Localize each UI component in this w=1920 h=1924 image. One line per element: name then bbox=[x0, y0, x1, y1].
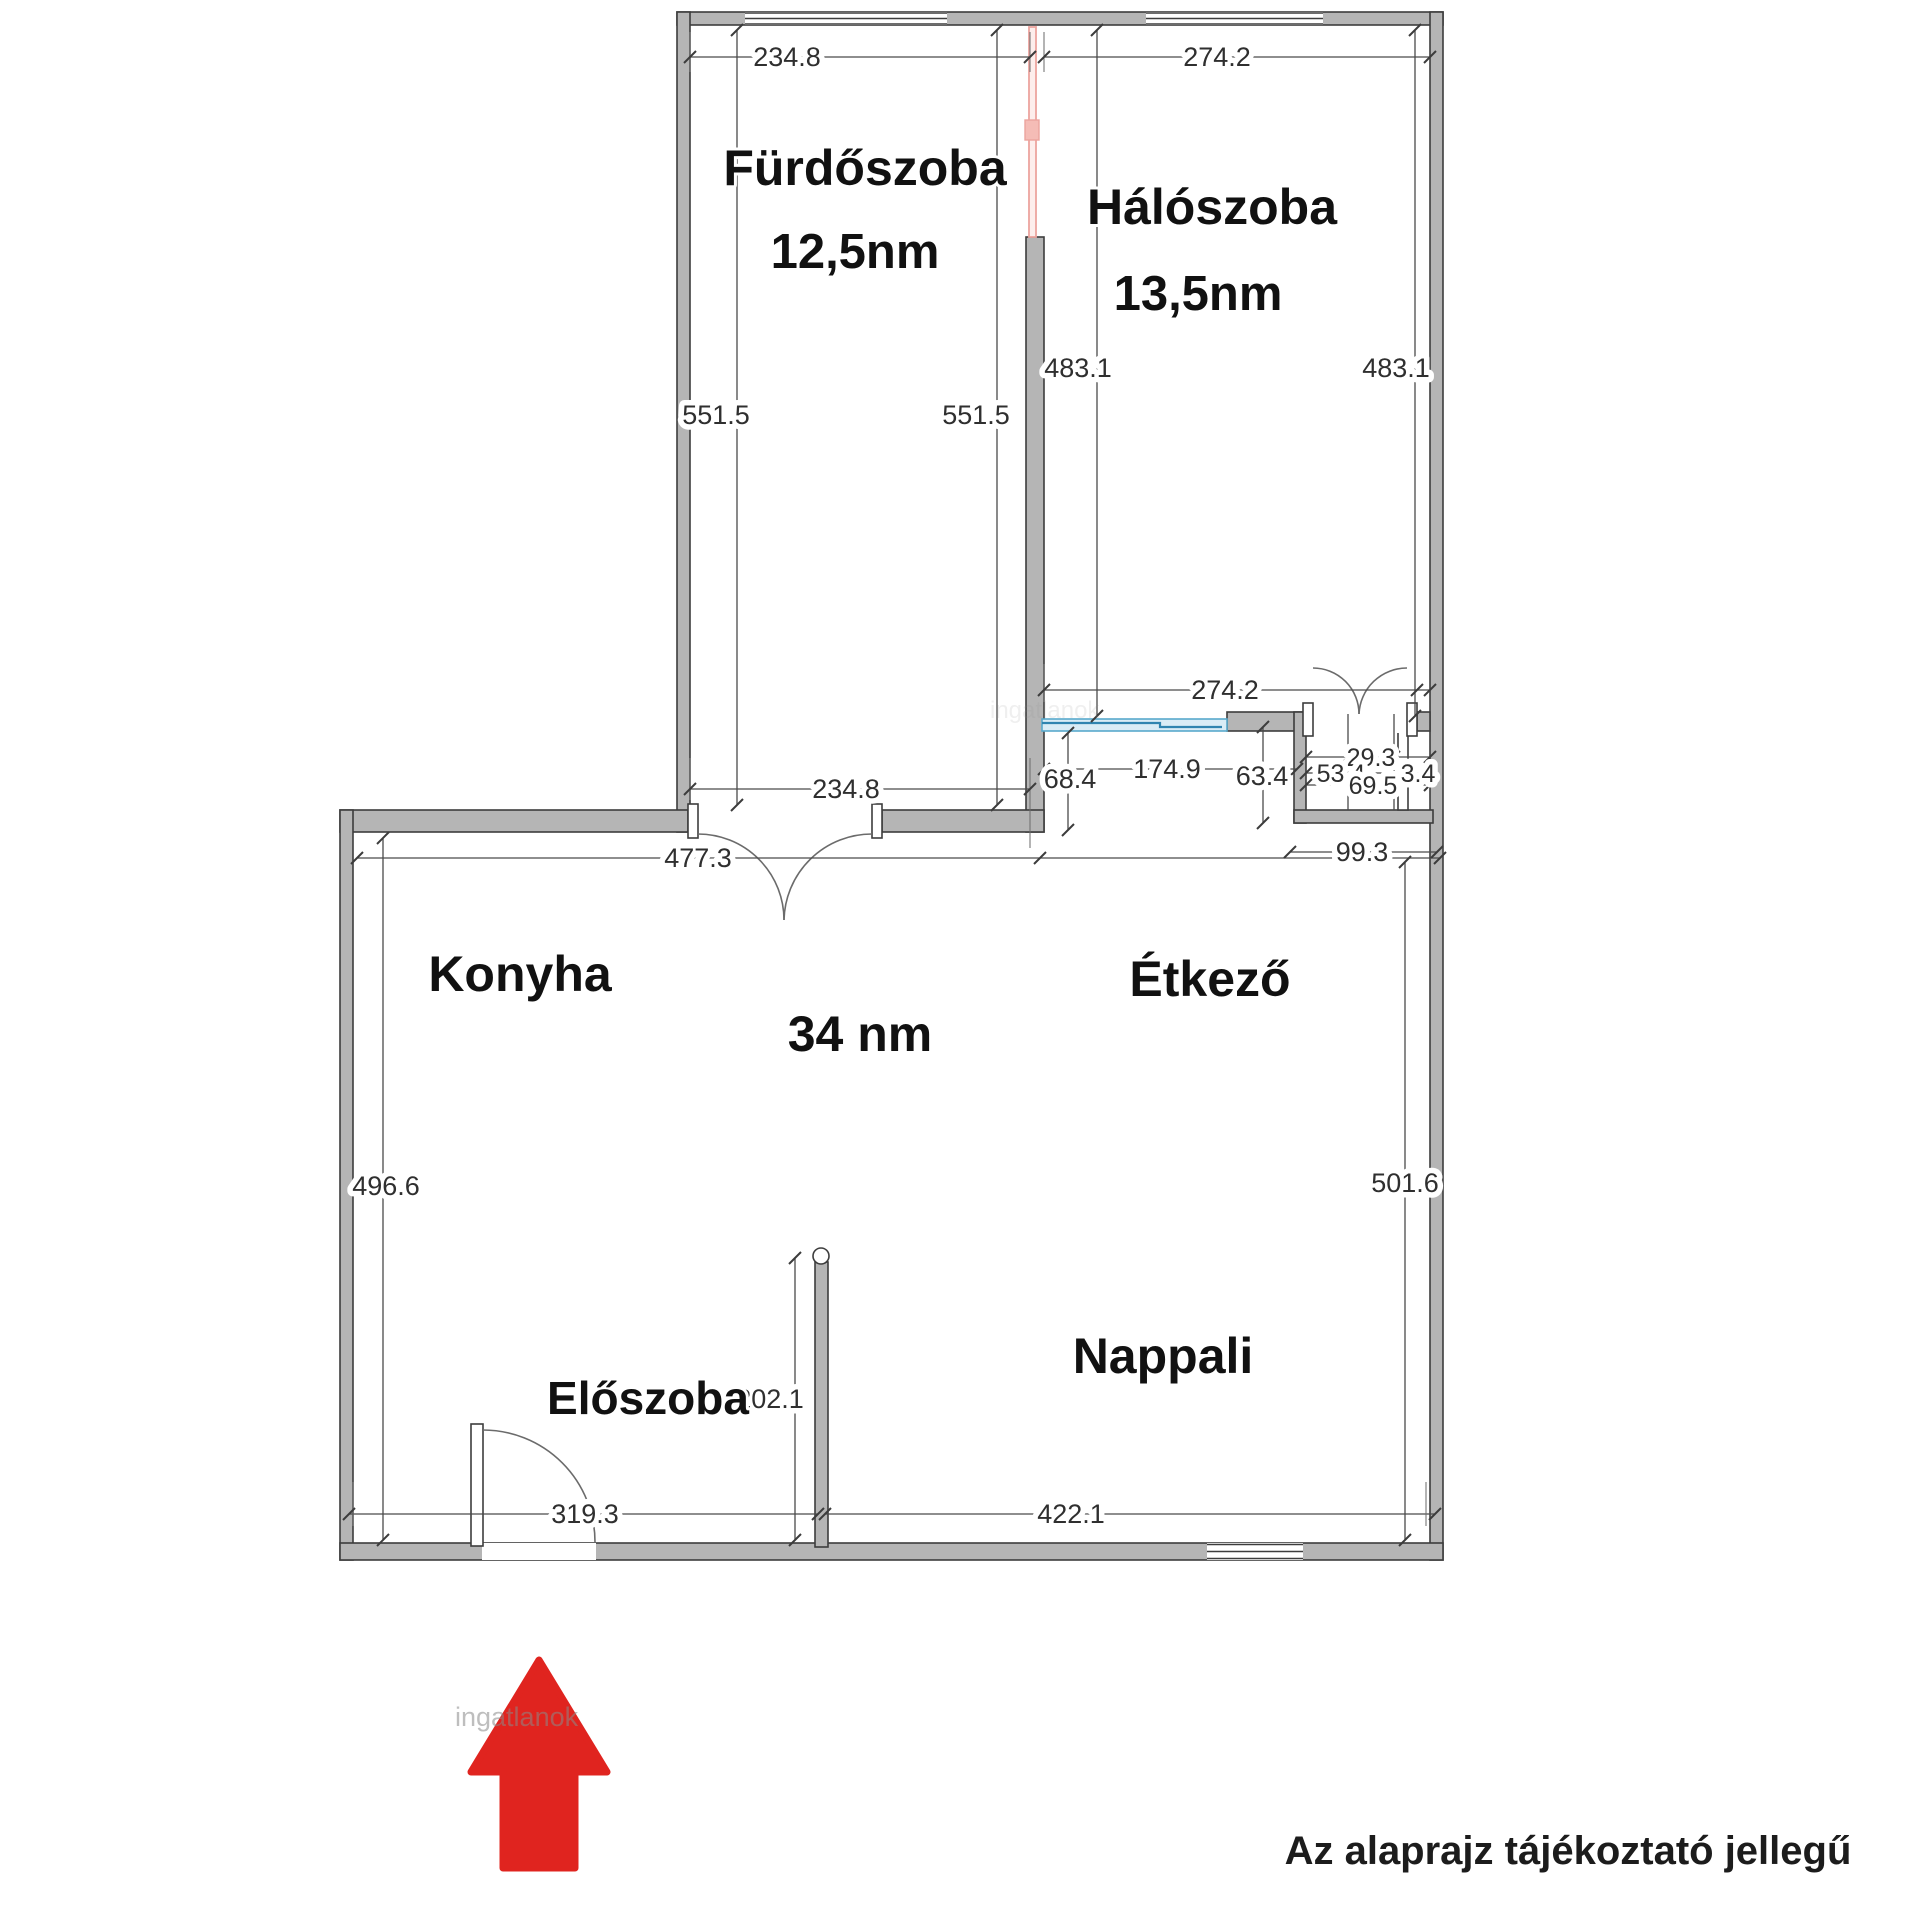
room-area-open-space: 34 nm bbox=[788, 1006, 933, 1062]
up-arrow-icon bbox=[471, 1660, 607, 1868]
dim-bed-right: 483.1 bbox=[1362, 353, 1430, 383]
orientation-arrow: ingatlanok bbox=[455, 1660, 607, 1868]
room-area-bedroom: 13,5nm bbox=[1114, 267, 1283, 321]
watermark-faint: ingatlanok bbox=[990, 697, 1100, 724]
dim-bath-left: 551.5 bbox=[682, 400, 750, 430]
window-bedroom-top bbox=[1146, 12, 1323, 25]
bathroom-door-frame-right bbox=[872, 804, 882, 838]
entrance-opening bbox=[482, 1543, 596, 1560]
window-living-bottom bbox=[1207, 1543, 1303, 1560]
floor-plan-page: 234.8 274.2 551.5 551.5 483.1 483.1 274.… bbox=[0, 0, 1920, 1924]
wall-bath-bottom bbox=[882, 810, 1044, 832]
dim-living-right: 501.6 bbox=[1371, 1168, 1439, 1198]
wall-left-lower bbox=[340, 810, 353, 1560]
dim-kitchen-left: 496.6 bbox=[352, 1171, 420, 1201]
pink-wall-notch bbox=[1025, 120, 1039, 140]
dim-passage: 174.9 bbox=[1133, 754, 1201, 784]
room-label-dining: Étkező bbox=[1129, 951, 1290, 1007]
wall-hall-divider bbox=[815, 1262, 828, 1547]
room-labels: Fürdőszoba 12,5nm Hálószoba 13,5nm Konyh… bbox=[428, 140, 1338, 1424]
room-label-hall: Előszoba bbox=[547, 1372, 749, 1424]
room-label-kitchen: Konyha bbox=[428, 946, 613, 1002]
closet-door-arc-right bbox=[1359, 668, 1407, 714]
wall-closet-bottom bbox=[1294, 810, 1433, 823]
wall-bedroom-bottom bbox=[1227, 712, 1303, 731]
dim-bed-left: 483.1 bbox=[1044, 353, 1112, 383]
closet-door-frame-left bbox=[1303, 703, 1313, 736]
dim-bath-bottom: 234.8 bbox=[812, 774, 880, 804]
wall-kitchen-top bbox=[340, 810, 688, 832]
floor-plan: 234.8 274.2 551.5 551.5 483.1 483.1 274.… bbox=[0, 0, 1920, 1924]
dim-69: 69.5 bbox=[1349, 772, 1398, 800]
dim-63: 63.4 bbox=[1236, 761, 1289, 791]
room-label-living: Nappali bbox=[1073, 1328, 1254, 1384]
dim-bath-right: 551.5 bbox=[942, 400, 1010, 430]
entrance-door-leaf bbox=[471, 1424, 483, 1546]
closet-door-opening bbox=[1313, 710, 1407, 733]
dim-mid-width: 477.3 bbox=[664, 843, 732, 873]
dim-bed-bottom: 274.2 bbox=[1191, 675, 1259, 705]
dim-68: 68.4 bbox=[1044, 764, 1097, 794]
room-label-bathroom: Fürdőszoba bbox=[723, 140, 1008, 196]
dim-living-bottom: 422.1 bbox=[1037, 1499, 1105, 1529]
wall-bedroom-bottom-right bbox=[1417, 712, 1430, 731]
window-bathroom-top bbox=[745, 12, 947, 25]
dim-hall-bottom: 319.3 bbox=[551, 1499, 619, 1529]
dim-bath-top: 234.8 bbox=[753, 42, 821, 72]
wall-end-cap bbox=[813, 1248, 829, 1264]
dim-3: 3.4 bbox=[1401, 760, 1436, 788]
dim-closet-width: 99.3 bbox=[1336, 837, 1389, 867]
wall-partition-bath-bedroom bbox=[1026, 237, 1044, 832]
dim-bed-top: 274.2 bbox=[1183, 42, 1251, 72]
closet-door-arc-left bbox=[1313, 668, 1359, 714]
bathroom-door-arc-right bbox=[784, 834, 872, 920]
room-label-bedroom: Hálószoba bbox=[1087, 179, 1338, 235]
bathroom-door-frame-left bbox=[688, 804, 698, 838]
room-area-bathroom: 12,5nm bbox=[771, 225, 940, 279]
bathroom-door-opening bbox=[698, 810, 872, 832]
watermark-text: ingatlanok bbox=[455, 1702, 579, 1732]
doors bbox=[471, 668, 1417, 1560]
disclaimer-caption: Az alaprajz tájékoztató jellegű bbox=[1285, 1829, 1852, 1873]
